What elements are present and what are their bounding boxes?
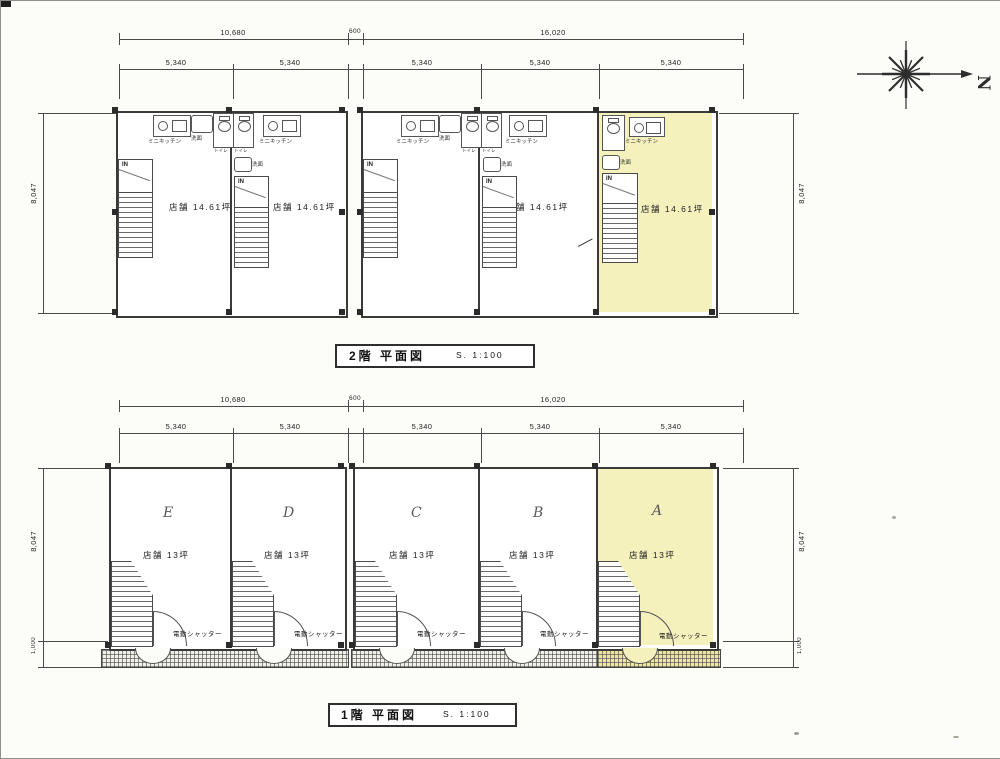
stair-treads xyxy=(603,203,637,262)
shutter-label: 電動シャッター xyxy=(173,628,222,638)
f2-dim-span: 5,340 xyxy=(258,58,322,67)
mini-kitchen-icon xyxy=(509,115,547,137)
f1-dim-total-right: 16,020 xyxy=(521,395,585,404)
toilet-label: トイレ xyxy=(234,148,248,154)
f2-dim-tick xyxy=(481,64,482,99)
compass-rose: N xyxy=(849,37,997,117)
f1-unitB-area: 店舗 13坪 xyxy=(509,549,555,561)
mini-kitchen-label: ミニキッチン xyxy=(396,137,429,145)
pillar xyxy=(710,642,716,648)
f2-vdim-tick xyxy=(719,313,799,314)
toilet-label: トイレ xyxy=(462,148,476,154)
f1-unitD-area: 店舗 13坪 xyxy=(264,549,310,561)
f2-dim-tick xyxy=(348,64,349,99)
f1-dim-tick xyxy=(119,400,120,412)
f1-dim-span: 5,340 xyxy=(508,422,572,431)
f1-vdim-tick xyxy=(723,667,799,668)
f1-dim-line-total xyxy=(119,406,743,407)
f2-dim-span: 5,340 xyxy=(144,58,208,67)
f2-vdim-tick xyxy=(38,113,118,114)
stair-treads xyxy=(483,207,516,267)
f2-dim-tick xyxy=(119,33,120,45)
washbasin-icon xyxy=(234,157,252,172)
pillar xyxy=(593,309,599,315)
washbasin-icon xyxy=(602,155,620,170)
f2-dim-line-spans xyxy=(119,69,743,70)
stair-diagonal xyxy=(119,169,150,181)
pillar xyxy=(474,463,480,469)
mini-kitchen-icon xyxy=(153,115,191,137)
pillar xyxy=(349,642,355,648)
scan-speck xyxy=(794,732,799,735)
stair-diagonal xyxy=(603,183,635,196)
pillar xyxy=(226,107,232,113)
f1-vdim-left xyxy=(43,468,44,641)
f1-height-right: 8,047 xyxy=(797,531,806,552)
toilet-label: トイレ xyxy=(482,148,496,154)
shutter-label: 電動シャッター xyxy=(540,628,589,638)
stair-treads xyxy=(235,207,268,267)
pillar xyxy=(709,309,715,315)
toilet-room xyxy=(481,113,502,148)
f2-unit2-area: 店舗 14.61坪 xyxy=(273,201,336,213)
f1-walk-right: 1,000 xyxy=(797,637,803,654)
f2-height-left: 8,047 xyxy=(29,183,38,204)
f2-dim-span: 5,340 xyxy=(639,58,703,67)
pillar xyxy=(338,463,344,469)
stairs-in-label: IN xyxy=(367,162,373,168)
f2-dim-tick xyxy=(363,64,364,99)
stair-diagonal xyxy=(364,169,395,181)
f1-dim-line-spans xyxy=(119,433,743,434)
f2-party-wall xyxy=(597,113,599,314)
f1-dim-span: 5,340 xyxy=(390,422,454,431)
pillar xyxy=(710,463,716,469)
pillar xyxy=(593,107,599,113)
washbasin-label: 洗面 xyxy=(501,160,512,168)
washbasin-label: 洗面 xyxy=(620,158,631,166)
stair-diagonal xyxy=(483,186,514,198)
f1-unitB-letter: B xyxy=(533,505,543,521)
f2-dim-gap: 600 xyxy=(343,28,367,35)
f2-scale: S. 1:100 xyxy=(456,350,504,360)
f2-dim-tick xyxy=(743,64,744,99)
pillar xyxy=(357,209,363,215)
pillar xyxy=(474,107,480,113)
f1-vdim-tick xyxy=(38,641,108,642)
f2-vdim-right xyxy=(793,113,794,313)
stair-diagonal xyxy=(235,186,266,198)
f1-dim-tick xyxy=(119,428,120,463)
scan-speck xyxy=(953,736,959,738)
f2-dim-total-left: 10,680 xyxy=(201,28,265,37)
f2-dim-line-total xyxy=(119,39,743,40)
toilet-room xyxy=(213,113,234,148)
f2-dim-span: 5,340 xyxy=(508,58,572,67)
f1-dim-span: 5,340 xyxy=(258,422,322,431)
f2-vdim-tick xyxy=(38,313,118,314)
f1-title: 1階 平面図 xyxy=(341,706,417,723)
f1-dim-tick xyxy=(363,428,364,463)
shutter-label: 電動シャッター xyxy=(659,630,708,640)
pillar xyxy=(226,309,232,315)
north-arrowhead xyxy=(961,70,973,78)
toilet-room xyxy=(461,113,482,148)
f2-height-right: 8,047 xyxy=(797,183,806,204)
washbasin-icon xyxy=(483,157,501,172)
f1-vdim-left-walk xyxy=(43,641,44,667)
pillar xyxy=(357,309,363,315)
f2-dim-tick xyxy=(119,64,120,99)
f2-title: 2階 平面図 xyxy=(349,347,425,364)
f2-stairs: IN xyxy=(602,173,638,263)
f1-unitC-letter: C xyxy=(411,505,422,521)
pillar xyxy=(357,107,363,113)
mini-kitchen-label: ミニキッチン xyxy=(505,137,538,145)
pillar xyxy=(339,309,345,315)
f1-height-left: 8,047 xyxy=(29,531,38,552)
washbasin-icon xyxy=(439,115,461,133)
f1-unitA-letter: A xyxy=(652,503,662,519)
f1-scale: S. 1:100 xyxy=(443,709,491,719)
f2-stairs: IN xyxy=(118,159,153,258)
f1-unitE-area: 店舗 13坪 xyxy=(143,549,189,561)
pillar xyxy=(709,107,715,113)
toilet-room xyxy=(233,113,254,148)
shutter-label: 電動シャッター xyxy=(294,628,343,638)
f1-dim-total-left: 10,680 xyxy=(201,395,265,404)
f1-unitA-area: 店舗 13坪 xyxy=(629,549,675,561)
f2-vdim-left xyxy=(43,113,44,313)
floorplan-sheet: N 10,680 600 16,020 5,340 5,340 5,340 5,… xyxy=(0,0,1000,759)
f1-walk-left: 1,000 xyxy=(31,637,37,654)
f2-stairs: IN xyxy=(482,176,517,268)
f1-vdim-right xyxy=(793,468,794,641)
stairs-in-label: IN xyxy=(606,176,612,182)
f1-dim-span: 5,340 xyxy=(144,422,208,431)
f2-unit5-area: 店舗 14.61坪 xyxy=(641,203,704,215)
f2-stairs: IN xyxy=(363,159,398,258)
mini-kitchen-label: ミニキッチン xyxy=(259,137,292,145)
f1-party-wall xyxy=(478,469,480,647)
f2-dim-total-right: 16,020 xyxy=(521,28,585,37)
f1-vdim-tick xyxy=(723,641,799,642)
pillar xyxy=(105,642,111,648)
toilet-room xyxy=(602,115,625,151)
pillar xyxy=(339,107,345,113)
pillar xyxy=(474,642,480,648)
f1-sidewalk-unit-a xyxy=(597,649,721,668)
f2-dim-span: 5,340 xyxy=(390,58,454,67)
f2-vdim-tick xyxy=(719,113,799,114)
scan-corner-mark xyxy=(1,1,11,7)
mini-kitchen-icon xyxy=(629,117,665,137)
washbasin-label: 洗面 xyxy=(252,160,263,168)
f1-party-wall xyxy=(596,469,598,647)
pillar xyxy=(112,107,118,113)
f1-dim-tick xyxy=(348,428,349,463)
mini-kitchen-label: ミニキッチン xyxy=(625,137,658,145)
north-label: N xyxy=(973,75,993,91)
f2-dim-tick xyxy=(599,64,600,99)
toilet-label: トイレ xyxy=(214,148,228,154)
f1-vdim-tick xyxy=(38,468,108,469)
f1-dim-tick xyxy=(743,428,744,463)
f2-dim-tick xyxy=(743,33,744,45)
washbasin-label: 洗面 xyxy=(191,134,202,142)
pillar xyxy=(474,309,480,315)
scan-speck xyxy=(892,516,896,519)
f1-vdim-tick xyxy=(723,468,799,469)
washbasin-label: 洗面 xyxy=(439,134,450,142)
pillar xyxy=(592,642,598,648)
mini-kitchen-label: ミニキッチン xyxy=(148,137,181,145)
pillar xyxy=(226,642,232,648)
pillar xyxy=(709,209,715,215)
pillar xyxy=(339,209,345,215)
stairs-in-label: IN xyxy=(486,179,492,185)
f1-unitE-letter: E xyxy=(163,505,173,521)
pillar xyxy=(338,642,344,648)
shutter-label: 電動シャッター xyxy=(417,628,466,638)
stairs-in-label: IN xyxy=(238,179,244,185)
mini-kitchen-icon xyxy=(401,115,439,137)
f1-dim-tick xyxy=(599,428,600,463)
f1-unitC-area: 店舗 13坪 xyxy=(389,549,435,561)
pillar xyxy=(226,463,232,469)
f2-unit1-area: 店舗 14.61坪 xyxy=(169,201,232,213)
f1-unitD-letter: D xyxy=(283,505,294,521)
pillar xyxy=(349,463,355,469)
f2-stairs: IN xyxy=(234,176,269,268)
mini-kitchen-icon xyxy=(263,115,301,137)
f1-dim-tick xyxy=(233,428,234,463)
f1-dim-tick xyxy=(743,400,744,412)
f1-dim-gap: 600 xyxy=(343,395,367,402)
f1-vdim-tick xyxy=(38,667,108,668)
f2-dim-tick xyxy=(233,64,234,99)
stairs-in-label: IN xyxy=(122,162,128,168)
pillar xyxy=(112,209,118,215)
f1-dim-tick xyxy=(481,428,482,463)
pillar xyxy=(592,463,598,469)
f1-party-wall xyxy=(230,469,232,647)
pillar xyxy=(105,463,111,469)
f1-vdim-right-walk xyxy=(793,641,794,667)
stair-treads xyxy=(119,192,152,257)
pillar xyxy=(112,309,118,315)
stair-treads xyxy=(364,192,397,257)
f1-dim-span: 5,340 xyxy=(639,422,703,431)
washbasin-icon xyxy=(191,115,213,133)
